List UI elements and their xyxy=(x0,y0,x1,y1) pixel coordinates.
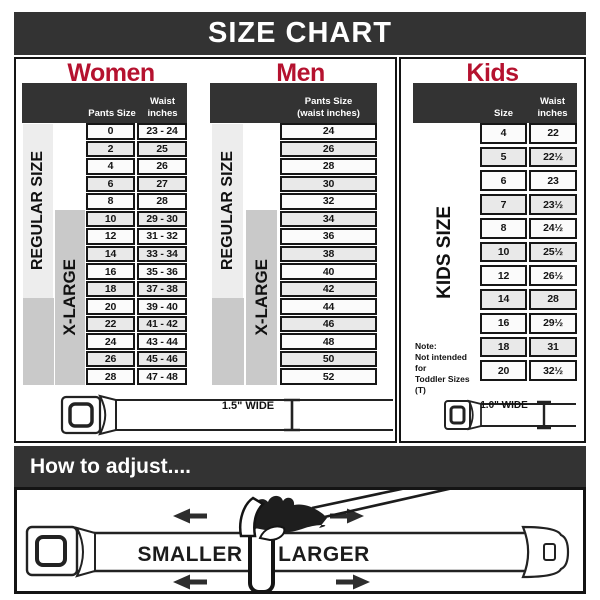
pants-size-cell: 24 xyxy=(86,333,135,350)
size-cell: 14 xyxy=(480,289,527,310)
waist-inches-cell: 35 - 36 xyxy=(137,263,187,280)
arrow-left-icon xyxy=(173,509,207,524)
waist-inches-cell: 22½ xyxy=(529,147,577,168)
kids-table-header: Size Waist inches xyxy=(413,83,577,123)
women-regular-size-band: REGULAR SIZE xyxy=(23,124,53,298)
pants-size-cell: 42 xyxy=(280,281,377,298)
waist-inches-cell: 23½ xyxy=(529,194,577,215)
table-row: 34 xyxy=(280,211,377,228)
pants-size-cell: 40 xyxy=(280,263,377,280)
pants-size-cell: 20 xyxy=(86,298,135,315)
waist-inches-cell: 26 xyxy=(137,158,187,175)
table-row: 26 45 - 46 xyxy=(86,351,187,368)
table-row: 12 31 - 32 xyxy=(86,228,187,245)
table-row: 7 23½ xyxy=(480,194,577,215)
waist-inches-cell: 32½ xyxy=(529,360,577,381)
waist-inches-cell: 31 - 32 xyxy=(137,228,187,245)
table-row: 22 41 - 42 xyxy=(86,316,187,333)
table-row: 18 37 - 38 xyxy=(86,281,187,298)
pants-size-cell: 6 xyxy=(86,176,135,193)
women-xlarge-band: X-LARGE xyxy=(55,210,85,385)
pants-size-cell: 48 xyxy=(280,333,377,350)
kids-col-size: Size xyxy=(480,108,527,119)
pants-size-cell: 44 xyxy=(280,298,377,315)
pants-size-cell: 12 xyxy=(86,228,135,245)
table-row: 14 33 - 34 xyxy=(86,246,187,263)
waist-inches-cell: 26½ xyxy=(529,265,577,286)
table-row: 32 xyxy=(280,193,377,210)
larger-label: LARGER xyxy=(254,543,394,567)
table-row: 6 27 xyxy=(86,176,187,193)
pants-size-cell: 28 xyxy=(280,158,377,175)
waist-inches-cell: 33 - 34 xyxy=(137,246,187,263)
women-size-rows: 0 23 - 24 2 25 4 26 6 27 8 28 10 29 - 30 xyxy=(86,123,187,385)
table-row: 28 47 - 48 xyxy=(86,368,187,385)
waist-inches-cell: 29 - 30 xyxy=(137,211,187,228)
size-cell: 7 xyxy=(480,194,527,215)
table-row: 6 23 xyxy=(480,170,577,191)
men-heading: Men xyxy=(206,59,395,84)
waist-inches-cell: 39 - 40 xyxy=(137,298,187,315)
size-cell: 5 xyxy=(480,147,527,168)
size-cell: 18 xyxy=(480,337,527,358)
waist-inches-cell: 23 - 24 xyxy=(137,123,187,140)
table-row: 20 32½ xyxy=(480,360,577,381)
table-row: 8 24½ xyxy=(480,218,577,239)
table-row: 10 25½ xyxy=(480,242,577,263)
waist-inches-cell: 37 - 38 xyxy=(137,281,187,298)
size-cell: 4 xyxy=(480,123,527,144)
waist-inches-cell: 43 - 44 xyxy=(137,333,187,350)
table-row: 18 31 xyxy=(480,337,577,358)
table-row: 8 28 xyxy=(86,193,187,210)
table-row: 10 29 - 30 xyxy=(86,211,187,228)
table-row: 14 28 xyxy=(480,289,577,310)
pants-size-cell: 22 xyxy=(86,316,135,333)
table-row: 50 xyxy=(280,351,377,368)
women-heading: Women xyxy=(16,59,206,84)
kids-size-table: Size Waist inches KIDS SIZE Note: Not in… xyxy=(413,83,577,381)
pants-size-cell: 34 xyxy=(280,211,377,228)
size-cell: 8 xyxy=(480,218,527,239)
table-row: 26 xyxy=(280,141,377,158)
kids-col-waist: Waist inches xyxy=(528,96,577,119)
adjust-belt-illustration xyxy=(17,490,583,591)
men-size-rows: 24 26 28 30 32 34 36 38 40 42 xyxy=(280,123,377,385)
men-regular-size-band: REGULAR SIZE xyxy=(212,124,243,298)
men-size-table: Pants Size (waist inches) REGULAR SIZE X… xyxy=(210,83,377,385)
women-col-waist: Waist inches xyxy=(138,96,187,119)
pants-size-cell: 28 xyxy=(86,368,135,385)
women-table-header: Pants Size Waist inches xyxy=(22,83,187,123)
pants-size-cell: 24 xyxy=(280,123,377,140)
waist-inches-cell: 41 - 42 xyxy=(137,316,187,333)
size-cell: 6 xyxy=(480,170,527,191)
table-row: 40 xyxy=(280,263,377,280)
kids-belt-width-label: 1.0" WIDE xyxy=(454,400,554,411)
table-row: 36 xyxy=(280,228,377,245)
pants-size-cell: 2 xyxy=(86,141,135,158)
pants-size-cell: 38 xyxy=(280,246,377,263)
size-cell: 20 xyxy=(480,360,527,381)
pants-size-cell: 18 xyxy=(86,281,135,298)
pants-size-cell: 26 xyxy=(86,351,135,368)
table-row: 0 23 - 24 xyxy=(86,123,187,140)
table-row: 12 26½ xyxy=(480,265,577,286)
pants-size-cell: 8 xyxy=(86,193,135,210)
women-col-pants-size: Pants Size xyxy=(86,108,138,119)
pants-size-cell: 36 xyxy=(280,228,377,245)
table-row: 4 26 xyxy=(86,158,187,175)
kids-size-rows: 4 22 5 22½ 6 23 7 23½ 8 24½ 10 25½ xyxy=(480,123,577,381)
waist-inches-cell: 29½ xyxy=(529,313,577,334)
pants-size-cell: 46 xyxy=(280,316,377,333)
pants-size-cell: 26 xyxy=(280,141,377,158)
table-row: 2 25 xyxy=(86,141,187,158)
size-cell: 12 xyxy=(480,265,527,286)
pants-size-cell: 32 xyxy=(280,193,377,210)
table-row: 42 xyxy=(280,281,377,298)
table-row: 44 xyxy=(280,298,377,315)
arrow-left-icon xyxy=(173,575,207,590)
waist-inches-cell: 22 xyxy=(529,123,577,144)
waist-inches-cell: 25½ xyxy=(529,242,577,263)
pants-size-cell: 30 xyxy=(280,176,377,193)
men-col-pants-size: Pants Size (waist inches) xyxy=(280,96,377,119)
kids-note: Note: Not intended for Toddler Sizes (T) xyxy=(415,341,479,396)
table-row: 24 43 - 44 xyxy=(86,333,187,350)
size-cell: 10 xyxy=(480,242,527,263)
pants-size-cell: 52 xyxy=(280,368,377,385)
women-size-table: Pants Size Waist inches REGULAR SIZE X-L… xyxy=(22,83,187,385)
men-table-header: Pants Size (waist inches) xyxy=(210,83,377,123)
size-cell: 16 xyxy=(480,313,527,334)
kids-heading: Kids xyxy=(401,59,584,84)
kids-panel: Kids Size Waist inches KIDS SIZE Note: N… xyxy=(399,57,586,443)
table-row: 20 39 - 40 xyxy=(86,298,187,315)
women-xlarge-band-foot xyxy=(23,298,54,385)
table-row: 48 xyxy=(280,333,377,350)
adjust-illustration-box: SMALLER LARGER xyxy=(14,487,586,594)
waist-inches-cell: 25 xyxy=(137,141,187,158)
pants-size-cell: 14 xyxy=(86,246,135,263)
arrow-right-icon xyxy=(336,575,370,590)
adjust-heading: How to adjust.... xyxy=(14,446,586,487)
waist-inches-cell: 31 xyxy=(529,337,577,358)
page-title: SIZE CHART xyxy=(14,12,586,55)
pants-size-cell: 10 xyxy=(86,211,135,228)
table-row: 28 xyxy=(280,158,377,175)
women-men-panel: Women Men Pants Size Waist inches REGULA… xyxy=(14,57,397,443)
men-xlarge-band: X-LARGE xyxy=(246,210,277,385)
men-xlarge-band-foot xyxy=(212,298,244,385)
table-row: 38 xyxy=(280,246,377,263)
table-row: 24 xyxy=(280,123,377,140)
smaller-label: SMALLER xyxy=(120,543,260,567)
waist-inches-cell: 27 xyxy=(137,176,187,193)
pants-size-cell: 0 xyxy=(86,123,135,140)
waist-inches-cell: 47 - 48 xyxy=(137,368,187,385)
waist-inches-cell: 28 xyxy=(137,193,187,210)
waist-inches-cell: 45 - 46 xyxy=(137,351,187,368)
waist-inches-cell: 23 xyxy=(529,170,577,191)
table-row: 30 xyxy=(280,176,377,193)
waist-inches-cell: 24½ xyxy=(529,218,577,239)
pants-size-cell: 4 xyxy=(86,158,135,175)
table-row: 52 xyxy=(280,368,377,385)
pants-size-cell: 16 xyxy=(86,263,135,280)
table-row: 16 29½ xyxy=(480,313,577,334)
table-row: 4 22 xyxy=(480,123,577,144)
table-row: 16 35 - 36 xyxy=(86,263,187,280)
adult-belt-width-label: 1.5" WIDE xyxy=(188,400,308,412)
table-row: 5 22½ xyxy=(480,147,577,168)
size-chart-page: SIZE CHART Women Men Pants Size Waist in… xyxy=(0,0,600,600)
waist-inches-cell: 28 xyxy=(529,289,577,310)
pants-size-cell: 50 xyxy=(280,351,377,368)
table-row: 46 xyxy=(280,316,377,333)
